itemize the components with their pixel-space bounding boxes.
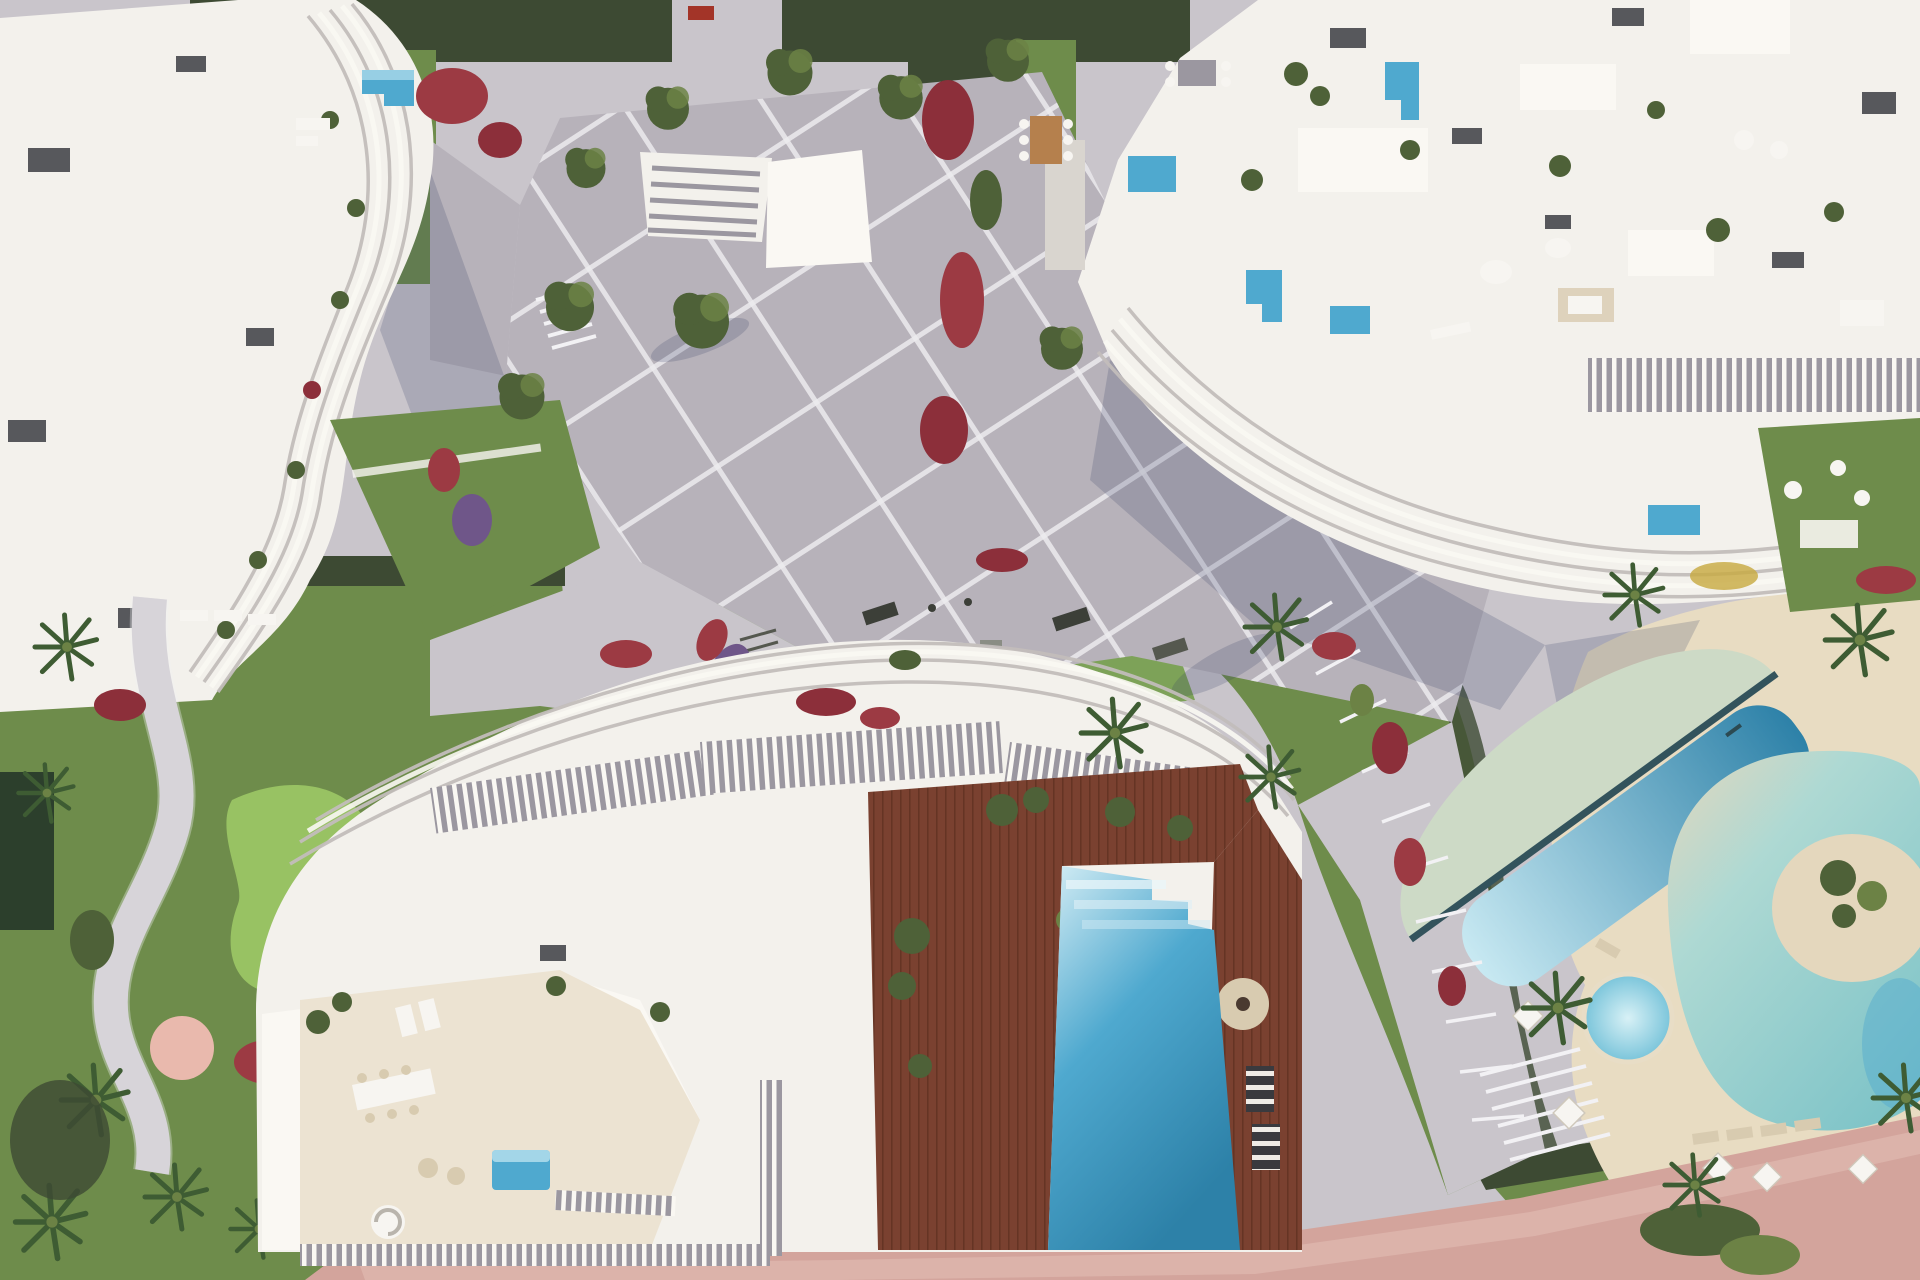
- pink-circle-plaza: [150, 1016, 214, 1080]
- roof-box-c2: [540, 945, 566, 961]
- terrace-slat-fence-south: [300, 1244, 770, 1266]
- lawn-sofa: [1800, 520, 1858, 548]
- parked-car: [688, 6, 714, 20]
- red-flower-bed: [1856, 566, 1916, 594]
- island-shrub-3: [1832, 904, 1856, 928]
- building-a-roof-pool-step: [362, 70, 414, 80]
- plaza-canopy: [766, 150, 872, 268]
- island-shrub-1: [1820, 860, 1856, 896]
- promenade-tree-2: [1720, 1235, 1800, 1275]
- pouf-1: [1784, 481, 1802, 499]
- roof-lounger-a1: [296, 118, 330, 130]
- garden-dining-table: [1030, 116, 1062, 164]
- yellow-flower-bed: [1690, 562, 1758, 590]
- aerial-render-canvas: [0, 0, 1920, 1280]
- garden-dense-shrubs: [10, 1080, 110, 1200]
- building-b-slat-colonnade: [1588, 358, 1920, 412]
- terrace-slat-fence-east: [760, 1080, 782, 1256]
- roof-lounger-a2: [296, 136, 318, 146]
- pouf-2: [1830, 460, 1846, 476]
- pouf-3: [1854, 490, 1870, 506]
- scene-svg: [0, 0, 1920, 1280]
- island-shrub-2: [1857, 881, 1887, 911]
